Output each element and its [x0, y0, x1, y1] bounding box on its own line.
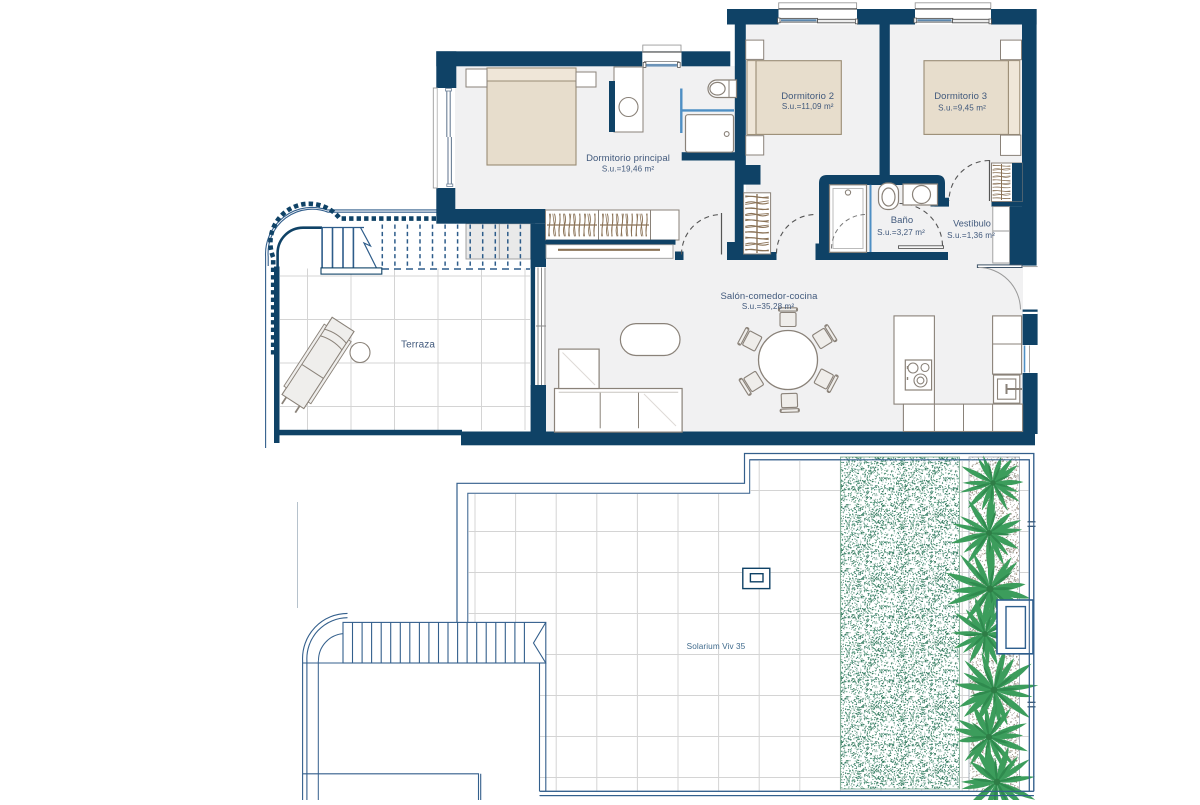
svg-text:S.u.=1,36 m²: S.u.=1,36 m²	[947, 231, 995, 240]
svg-text:S.u.=11,09 m²: S.u.=11,09 m²	[782, 102, 834, 111]
svg-text:S.u.=19,46 m²: S.u.=19,46 m²	[602, 165, 655, 174]
svg-text:Terraza: Terraza	[401, 340, 435, 351]
svg-text:Dormitorio 3: Dormitorio 3	[934, 91, 987, 102]
svg-text:Vestíbulo: Vestíbulo	[953, 219, 991, 229]
svg-text:S.u.=3,27 m²: S.u.=3,27 m²	[877, 228, 925, 237]
svg-text:S.u.=9,45 m²: S.u.=9,45 m²	[938, 104, 986, 113]
svg-text:Dormitorio principal: Dormitorio principal	[586, 153, 670, 164]
svg-text:Baño: Baño	[891, 215, 914, 226]
svg-text:Solarium Viv 35: Solarium Viv 35	[687, 642, 746, 651]
svg-text:S.u.=35,28 m²: S.u.=35,28 m²	[742, 302, 795, 311]
svg-text:Salón-comedor-cocina: Salón-comedor-cocina	[720, 291, 818, 302]
svg-text:Dormitorio 2: Dormitorio 2	[781, 91, 834, 102]
